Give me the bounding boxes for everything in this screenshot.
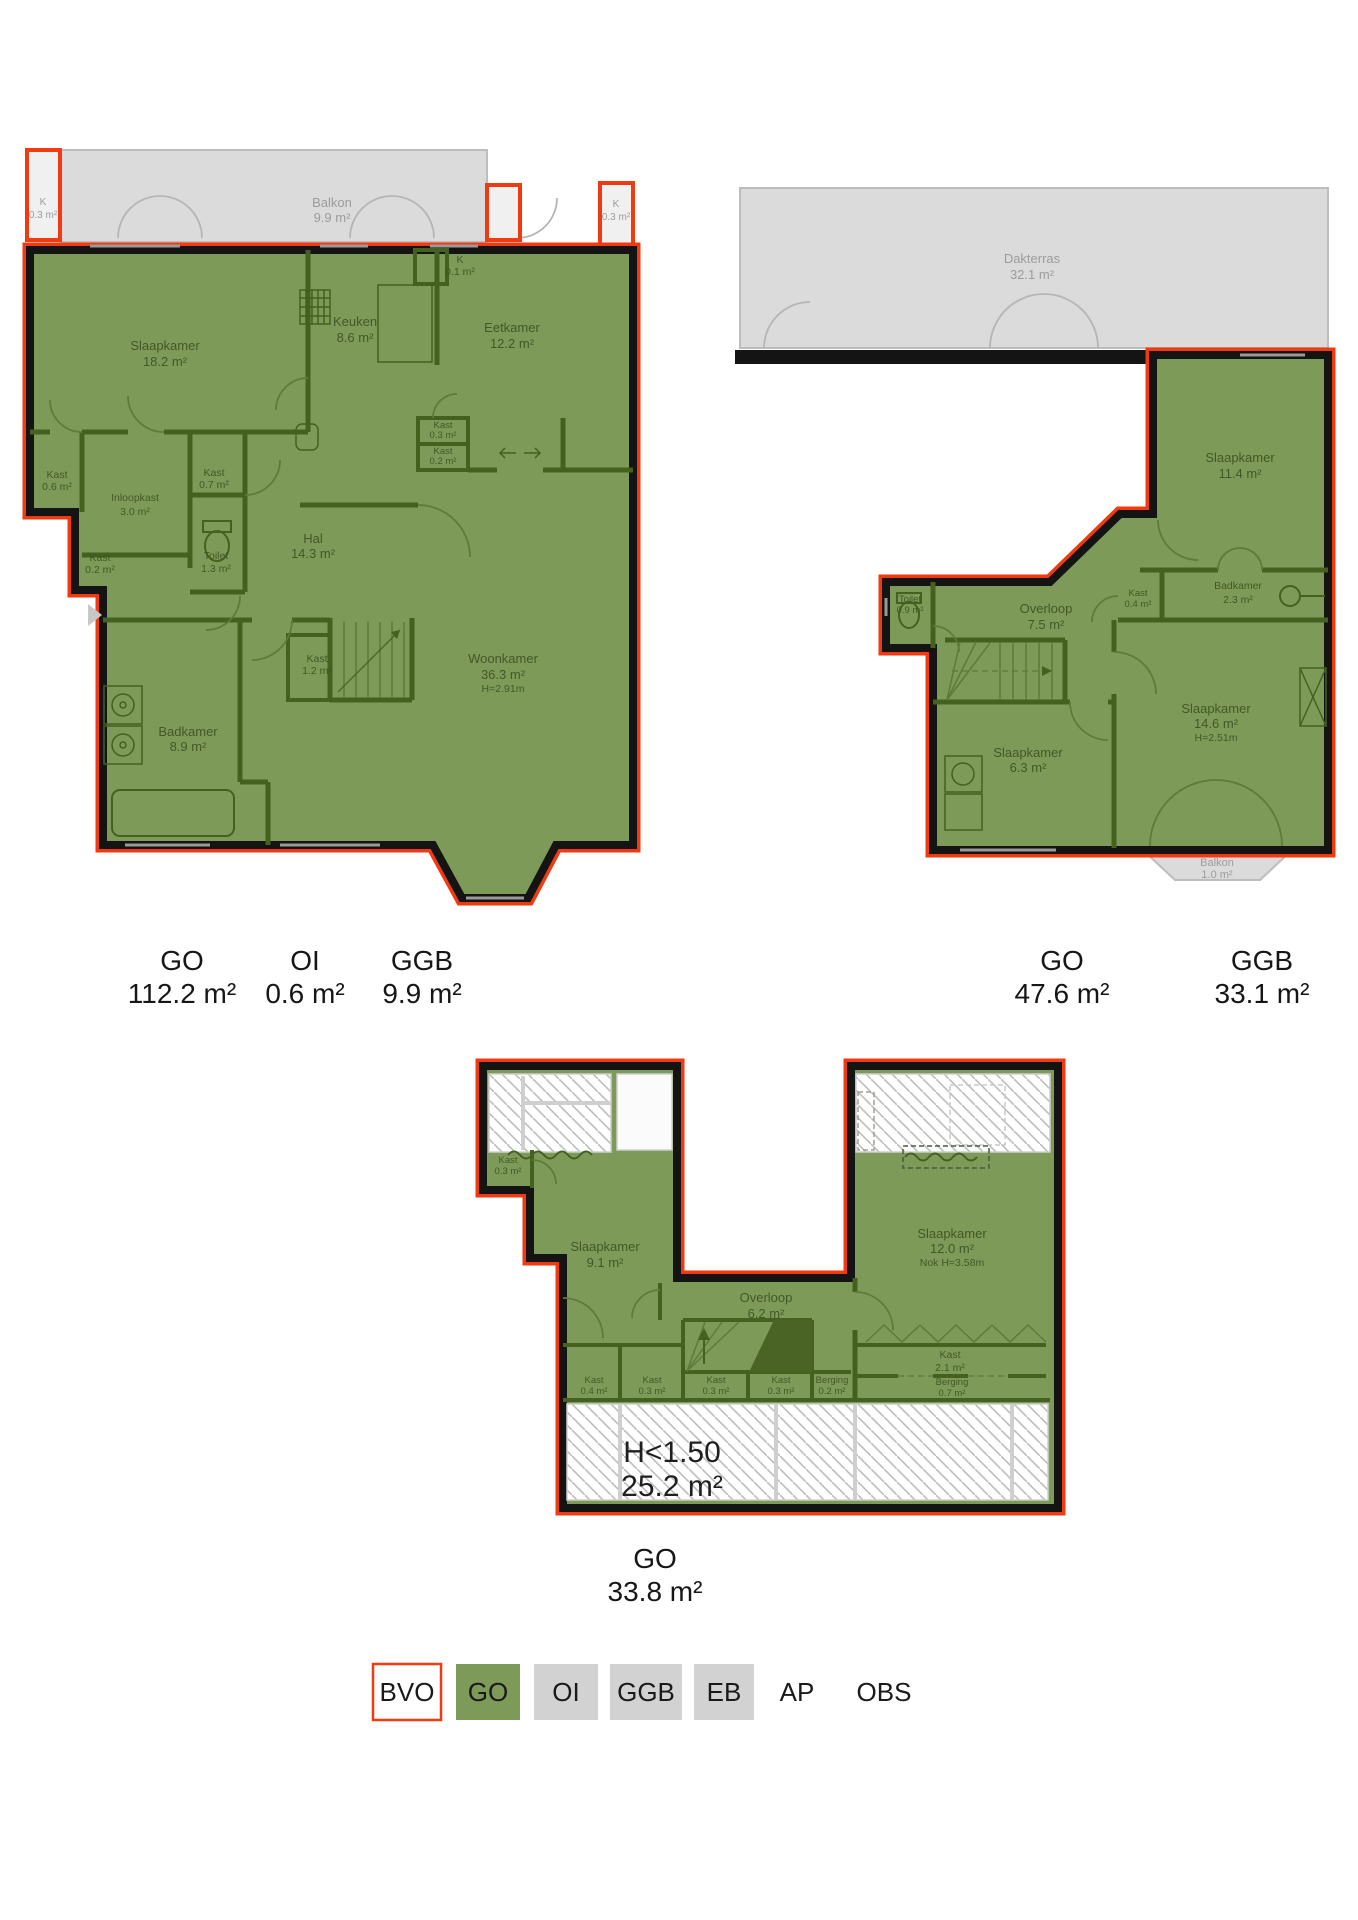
svg-text:0.3 m²: 0.3 m² bbox=[29, 210, 58, 221]
floorplan-drawing: Balkon 9.9 m² K 0.3 m² K 0.3 m² bbox=[0, 0, 1358, 1920]
svg-text:6.2 m²: 6.2 m² bbox=[748, 1306, 786, 1321]
room-area-balkon1: 9.9 m² bbox=[314, 210, 352, 225]
svg-text:0.3 m²: 0.3 m² bbox=[703, 1386, 730, 1397]
svg-text:7.5 m²: 7.5 m² bbox=[1028, 617, 1066, 632]
svg-text:14.6 m²: 14.6 m² bbox=[1194, 716, 1239, 731]
svg-text:0.4 m²: 0.4 m² bbox=[581, 1386, 608, 1397]
summary-plan1-oi-area: 0.6 m² bbox=[265, 978, 344, 1009]
plan1-closet-k-right: K 0.3 m² bbox=[600, 183, 633, 247]
room-label-badkamer1: Badkamer bbox=[158, 724, 218, 739]
floorplan-page: Balkon 9.9 m² K 0.3 m² K 0.3 m² bbox=[0, 0, 1358, 1920]
room-label-berging-02: Berging bbox=[816, 1375, 849, 1386]
svg-text:0.9 m²: 0.9 m² bbox=[897, 605, 924, 616]
legend-label-go: GO bbox=[468, 1677, 508, 1707]
legend-label-obs: OBS bbox=[857, 1677, 912, 1707]
svg-text:0.4 m²: 0.4 m² bbox=[1125, 599, 1152, 610]
summary-plan1-ggb-code: GGB bbox=[391, 945, 453, 976]
svg-text:H=2.91m: H=2.91m bbox=[482, 683, 525, 695]
room-label-woonkamer: Woonkamer bbox=[468, 651, 539, 666]
room-label-kast-12: Kast bbox=[306, 653, 327, 665]
svg-text:2.3 m²: 2.3 m² bbox=[1223, 594, 1253, 606]
svg-text:0.6 m²: 0.6 m² bbox=[42, 481, 72, 493]
room-label-hal: Hal bbox=[303, 531, 323, 546]
plan2-roof-terrace: Dakterras 32.1 m² bbox=[735, 188, 1333, 364]
svg-text:0.3 m²: 0.3 m² bbox=[639, 1386, 666, 1397]
svg-text:0.7 m²: 0.7 m² bbox=[199, 479, 229, 491]
room-label-kast-04: Kast bbox=[1128, 588, 1147, 599]
summary-plan1-go-code: GO bbox=[160, 945, 204, 976]
svg-text:8.6 m²: 8.6 m² bbox=[337, 330, 375, 345]
plan1-go-area bbox=[30, 250, 633, 898]
room-label-kast-02: Kast bbox=[89, 552, 110, 564]
svg-text:0.2 m²: 0.2 m² bbox=[430, 456, 457, 467]
plan3-floorplan: Kast 0.3 m² Slaapkamer 9.1 m² Overloop 6… bbox=[483, 1066, 1058, 1508]
summary-plan1-oi-code: OI bbox=[290, 945, 320, 976]
svg-text:12.2 m²: 12.2 m² bbox=[490, 336, 535, 351]
svg-text:K: K bbox=[613, 199, 620, 210]
svg-text:6.3 m²: 6.3 m² bbox=[1010, 760, 1048, 775]
room-label-kast-03-a: Kast bbox=[706, 1375, 725, 1386]
room-label-toilet1: Toilet bbox=[204, 550, 229, 562]
svg-text:0.3 m²: 0.3 m² bbox=[602, 212, 631, 223]
legend-label-oi: OI bbox=[552, 1677, 579, 1707]
svg-text:H=2.51m: H=2.51m bbox=[1195, 732, 1238, 744]
room-label-inloopkast: Inloopkast bbox=[111, 492, 159, 504]
svg-text:11.4 m²: 11.4 m² bbox=[1218, 466, 1262, 481]
summary-plan1-ggb-area: 9.9 m² bbox=[382, 978, 461, 1009]
svg-text:1.0 m²: 1.0 m² bbox=[1201, 869, 1233, 881]
svg-text:3.0 m²: 3.0 m² bbox=[120, 506, 150, 518]
svg-text:K: K bbox=[40, 197, 47, 208]
room-label-slaapkamer-146: Slaapkamer bbox=[1181, 701, 1251, 716]
summary-plan2-go-area: 47.6 m² bbox=[1015, 978, 1110, 1009]
svg-text:0.7 m²: 0.7 m² bbox=[939, 1388, 966, 1399]
legend-label-eb: EB bbox=[707, 1677, 742, 1707]
plan1-floorplan: Balkon 9.9 m² K 0.3 m² K 0.3 m² bbox=[27, 150, 633, 898]
room-label-eetkamer: Eetkamer bbox=[484, 320, 540, 335]
plan1-balcony: Balkon 9.9 m² bbox=[60, 150, 557, 242]
room-label-kast-03-l: Kast bbox=[642, 1375, 661, 1386]
summary-plan2-ggb-area: 33.1 m² bbox=[1215, 978, 1310, 1009]
room-label-balkon2: Balkon bbox=[1200, 857, 1234, 869]
svg-text:2.1 m²: 2.1 m² bbox=[935, 1362, 965, 1374]
summary-plan3-go-code: GO bbox=[633, 1543, 677, 1574]
svg-text:0.3 m²: 0.3 m² bbox=[768, 1386, 795, 1397]
room-label-slaapkamer-114: Slaapkamer bbox=[1205, 450, 1275, 465]
svg-text:1.3 m²: 1.3 m² bbox=[201, 563, 231, 575]
room-label-badkamer2: Badkamer bbox=[1214, 580, 1262, 592]
summary-plan2-go-code: GO bbox=[1040, 945, 1084, 976]
room-label-kast-06: Kast bbox=[46, 469, 67, 481]
legend-label-bvo: BVO bbox=[380, 1677, 435, 1707]
room-label-k-niche: K bbox=[456, 254, 463, 266]
room-label-balkon1: Balkon bbox=[312, 195, 352, 210]
svg-text:12.0 m²: 12.0 m² bbox=[930, 1241, 975, 1256]
room-label-slaapkamer-120: Slaapkamer bbox=[917, 1226, 987, 1241]
svg-text:8.9 m²: 8.9 m² bbox=[170, 739, 208, 754]
room-label-dakterras: Dakterras bbox=[1004, 251, 1061, 266]
plan1-closet-k-left: K 0.3 m² bbox=[27, 150, 60, 240]
low-height-label: H<1.50 bbox=[623, 1436, 721, 1469]
room-label-overloop2: Overloop bbox=[1020, 601, 1073, 616]
room-label-kast-03-top: Kast bbox=[498, 1155, 517, 1166]
svg-text:0.2 m²: 0.2 m² bbox=[85, 564, 115, 576]
plan2-floorplan: Dakterras 32.1 m² bbox=[735, 188, 1333, 881]
plan1-box-right-end bbox=[487, 185, 520, 240]
room-label-kast-21: Kast bbox=[939, 1349, 960, 1361]
svg-text:36.3 m²: 36.3 m² bbox=[481, 667, 526, 682]
legend-label-ap: AP bbox=[780, 1677, 815, 1707]
svg-text:0.3 m²: 0.3 m² bbox=[430, 430, 457, 441]
svg-text:9.1 m²: 9.1 m² bbox=[587, 1255, 625, 1270]
room-label-slaapkamer-63: Slaapkamer bbox=[993, 745, 1063, 760]
room-label-kast-07: Kast bbox=[203, 467, 224, 479]
svg-text:0.3 m²: 0.3 m² bbox=[495, 1166, 522, 1177]
svg-text:0.1 m²: 0.1 m² bbox=[445, 266, 475, 278]
room-label-kast-03-b: Kast bbox=[771, 1375, 790, 1386]
room-label-overloop3: Overloop bbox=[740, 1290, 793, 1305]
summary-plan2-ggb-code: GGB bbox=[1231, 945, 1293, 976]
room-label-keuken: Keuken bbox=[333, 314, 377, 329]
room-area-dakterras: 32.1 m² bbox=[1010, 267, 1055, 282]
legend-label-ggb: GGB bbox=[617, 1677, 675, 1707]
svg-text:1.2 m²: 1.2 m² bbox=[302, 665, 332, 677]
svg-text:14.3 m²: 14.3 m² bbox=[291, 546, 336, 561]
svg-text:25.2 m²: 25.2 m² bbox=[621, 1470, 723, 1503]
room-label-slaapkamer-91: Slaapkamer bbox=[570, 1239, 640, 1254]
summary-plan3-go-area: 33.8 m² bbox=[608, 1576, 703, 1607]
svg-text:18.2 m²: 18.2 m² bbox=[143, 354, 188, 369]
svg-text:Nok H=3.58m: Nok H=3.58m bbox=[920, 1257, 985, 1269]
room-label-slaapkamer: Slaapkamer bbox=[130, 338, 200, 353]
room-label-berging-07: Berging bbox=[936, 1377, 969, 1388]
room-label-toilet2: Toilet bbox=[899, 594, 922, 605]
svg-text:0.2 m²: 0.2 m² bbox=[819, 1386, 846, 1397]
summary-plan1-go-area: 112.2 m² bbox=[128, 978, 236, 1009]
room-label-kast-04-attic: Kast bbox=[584, 1375, 603, 1386]
legend: BVO GO OI GGB EB AP OBS bbox=[373, 1664, 911, 1720]
